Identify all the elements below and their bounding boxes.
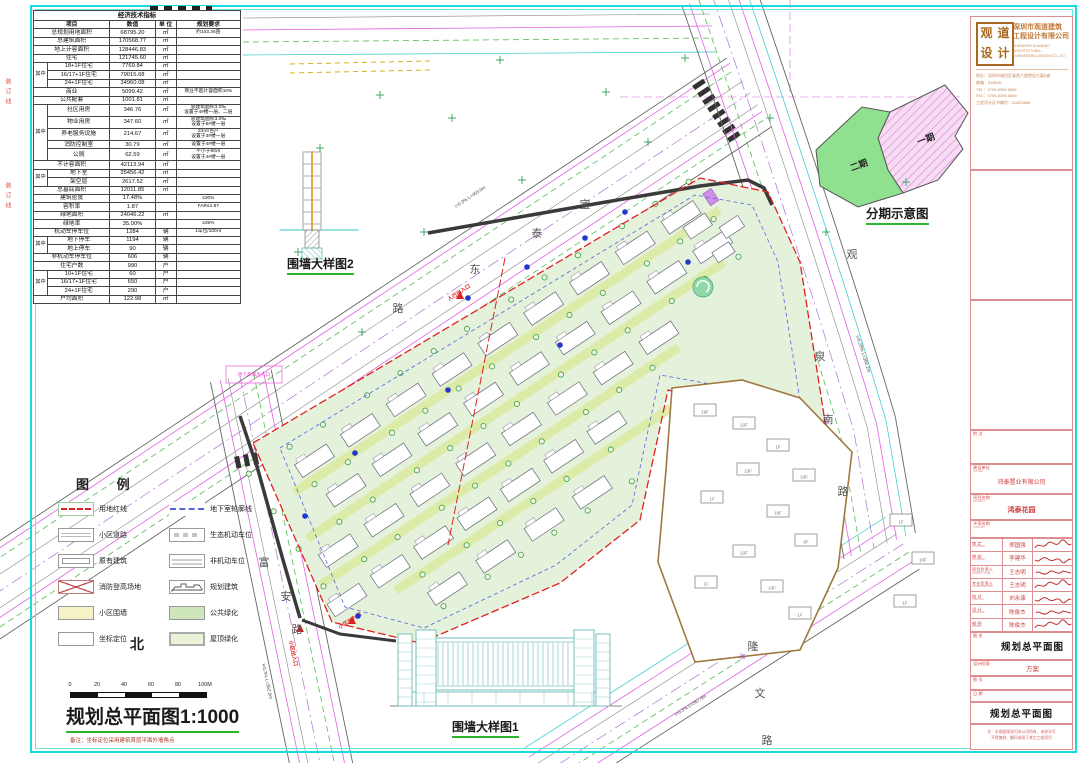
project-name: 鸿泰花园 [971, 505, 1072, 515]
scale-tick: 20 [94, 682, 100, 688]
svg-text:路: 路 [393, 302, 404, 315]
notes-box: 附 注 [970, 430, 1073, 464]
signature-row: 制 图DRAWN陈俊杰 [971, 619, 1072, 631]
legend-label: 规划建筑 [210, 582, 238, 592]
north-label: 北 [130, 634, 144, 654]
drawing-name: 规划总平面图 [995, 633, 1070, 659]
indicator-row: 24+1F住宅290户 [34, 287, 241, 295]
legend-swatch-fire [58, 580, 94, 594]
indicator-row: 其中10+1F住宅60户 [34, 270, 241, 278]
design-firm-box: 观道设计 深圳市观道建筑工程设计有限公司 SHENZHEN GUANDAO AR… [970, 16, 1073, 170]
svg-text:1F: 1F [902, 601, 908, 606]
indicator-row: 建筑密度17.48%≤30% [34, 194, 241, 202]
legend-item: 地下室轮廓线 [169, 502, 270, 516]
svg-text:1F: 1F [703, 582, 709, 587]
drawing-title: 规划总平面图1:1000 [66, 702, 239, 733]
scale-tick: 0 [68, 682, 71, 688]
indicator-row: 总建筑面积170568.77㎡ [34, 37, 241, 45]
legend-title: 图 例 [76, 474, 270, 493]
drawing-sheet: ✳ 19F10F1F10F13F1F10F9F10F1F10F1F1F10F1F… [0, 0, 1080, 763]
drawing-name-box: 图 名 规划总平面图 [970, 632, 1073, 660]
indicator-row: 16/17+1F住宅650户 [34, 278, 241, 286]
svg-text:13F: 13F [744, 469, 752, 474]
svg-text:10F: 10F [919, 558, 927, 563]
signature-table: 审 定APPROVED郑国强审 核REVIEWED李建华项目负责人PROJECT… [970, 538, 1073, 632]
fence-detail-1-title: 围墙大样图1 [452, 718, 519, 738]
indicator-row: 绿地面积24046.22㎡ [34, 211, 241, 219]
company-seal: 观道设计 [976, 22, 1014, 66]
fence-detail-1 [390, 630, 622, 706]
legend-item: 小区围墙 [58, 606, 159, 620]
stage-box: 设计阶段 方案 [970, 660, 1073, 676]
indicator-row: 消防控制室30.79㎡设置于4#楼一层 [34, 141, 241, 149]
company-name: 深圳市观道建筑工程设计有限公司 [1013, 23, 1069, 42]
table-title: 经济技术指标 [34, 11, 241, 21]
legend-swatch-bike [169, 554, 205, 568]
legend-swatch-planned [169, 580, 205, 594]
legend-label: 屋顶绿化 [210, 634, 238, 644]
svg-text:路: 路 [292, 623, 303, 636]
indicator-row: 商业5099.42㎡商业不超计容面积10% [34, 88, 241, 96]
indicator-row: 总规划用地面积68795.20㎡约103.36亩 [34, 29, 241, 37]
indicator-row: 其中18+1F住宅7769.84㎡ [34, 62, 241, 70]
subitem-box: 子项名称SUBITEM [970, 520, 1073, 538]
indicator-row: 架空层2617.52㎡ [34, 178, 241, 186]
indicator-row: 养老服务设施214.67㎡20㎡/百户 设置于3#楼一层 [34, 128, 241, 140]
svg-text:i=0.3% L=362.5m: i=0.3% L=362.5m [261, 663, 273, 699]
legend-label: 地下室轮廓线 [210, 504, 252, 514]
revision-box [970, 170, 1073, 300]
legend-swatch-coord [58, 632, 94, 646]
legend-swatch-existing [58, 554, 94, 568]
legend-item: 小区道路 [58, 528, 159, 542]
legend-swatch-reddash [58, 502, 94, 516]
phasing-diagram-title: 分期示意图 [866, 203, 929, 225]
legend-label: 用地红线 [99, 504, 127, 514]
svg-text:泉: 泉 [815, 349, 826, 363]
legend-label: 消防登高场地 [99, 582, 141, 592]
fence-detail-2 [280, 152, 358, 259]
legend-swatch-road [58, 528, 94, 542]
svg-text:i=0.3% L=453.0m: i=0.3% L=453.0m [454, 185, 487, 209]
indicator-row: 非机动车停车位606辆 [34, 253, 241, 261]
svg-text:1F: 1F [898, 520, 904, 525]
indicator-row: 机动车停车位1284辆1车位/100㎡ [34, 228, 241, 236]
title-block: 观道设计 深圳市观道建筑工程设计有限公司 SHENZHEN GUANDAO AR… [966, 4, 1078, 754]
drawing-no-box: 图 号 [970, 676, 1073, 690]
signature-row: 审 核REVIEWED李建华 [971, 552, 1072, 565]
signature-row: 审 定APPROVED郑国强 [971, 539, 1072, 552]
indicator-row: 24+1F住宅34960.08㎡ [34, 79, 241, 87]
svg-text:1F: 1F [775, 445, 781, 450]
svg-text:10F: 10F [740, 551, 748, 556]
scale-bar: 020406080100M [70, 682, 206, 700]
date-box: 日 期 [970, 690, 1073, 702]
indicator-row: 绿地率35.00%≥35% [34, 220, 241, 228]
svg-text:1F: 1F [709, 497, 715, 502]
svg-text:10F: 10F [800, 475, 808, 480]
scale-tick: 40 [121, 682, 127, 688]
company-name-en: SHENZHEN GUANDAO ARCHITECTURALENGINEERIN… [1013, 44, 1072, 58]
indicator-row: 容积率1.87FAR≤1.87 [34, 203, 241, 211]
scale-tick: 100M [198, 682, 212, 688]
legend-swatch-eco [169, 528, 205, 542]
scale-tick: 80 [175, 682, 181, 688]
binding-mark-text: 装订线 [3, 182, 12, 212]
legend-item: 用地红线 [58, 502, 159, 516]
indicator-row: 公共配套1001.81㎡ [34, 96, 241, 104]
indicator-row: 住宅户数990户 [34, 262, 241, 270]
legend-label: 公共绿化 [210, 608, 238, 618]
svg-text:东: 东 [470, 263, 481, 276]
legend-label: 坐标定位 [99, 634, 127, 644]
svg-text:南: 南 [823, 413, 834, 426]
indicator-row: 其中地下室35456.42㎡ [34, 169, 241, 177]
svg-text:19F: 19F [701, 410, 709, 415]
svg-text:10F: 10F [774, 511, 782, 516]
legend-label: 非机动车位 [210, 556, 245, 566]
svg-text:i=0.25% L=360.2m: i=0.25% L=360.2m [855, 335, 872, 373]
legend-label: 小区围墙 [99, 608, 127, 618]
indicator-row: 总基底面积12011.85㎡ [34, 186, 241, 194]
indicator-row: 其中地下停车1194辆 [34, 236, 241, 244]
legend-swatch-roof [169, 632, 205, 646]
svg-text:10F: 10F [768, 586, 776, 591]
signature-box [970, 300, 1073, 430]
legend-item: 屋顶绿化 [169, 632, 270, 646]
indicator-row: 户均面积122.98㎡ [34, 295, 241, 303]
svg-text:10F: 10F [740, 423, 748, 428]
utility-lines [243, 0, 960, 97]
owner-box: 建设单位OWNER 鸿泰置业有限公司 [970, 464, 1073, 494]
signature-row: 项目负责人PROJECT CHIEF王志明 [971, 566, 1072, 579]
drawing-name-2: 规划总平面图 [973, 703, 1070, 723]
svg-text:安: 安 [281, 589, 292, 603]
stage-value: 方案 [995, 661, 1070, 675]
indicator-row: 其中社区用房346.76㎡总建筑面积3.0‰ 设置于4#楼一层、二层 [34, 104, 241, 116]
svg-text:1F: 1F [797, 613, 803, 618]
indicator-row: 地上计容面积128446.83㎡ [34, 46, 241, 54]
owner-name: 鸿泰置业有限公司 [971, 477, 1072, 486]
project-box: 项目名称PROJECT 鸿泰花园 [970, 494, 1073, 520]
copyright-note-box: 注：本图纸版权归本公司所有，未经许可不得复制、翻印或用于其它工程项目 [970, 724, 1073, 750]
signature-row: 专业负责人DISCIPLINE CHIEF王志明 [971, 579, 1072, 592]
legend-item: 规划建筑 [169, 580, 270, 594]
company-contact: 地址：深圳市福田区泰然六路雪松大厦B座 邮编：518040 TEL：0755-8… [976, 69, 1068, 107]
scale-bar-segments [70, 692, 207, 698]
indicator-row: 住宅121745.60㎡ [34, 54, 241, 62]
signature-row: 校 对CHECKED刘永康 [971, 592, 1072, 605]
indicator-row: 地上停车90辆 [34, 245, 241, 253]
svg-text:i=0.3% L=367.4m: i=0.3% L=367.4m [674, 693, 707, 716]
fence-detail-2-title: 围墙大样图2 [287, 255, 354, 275]
phasing-diagram [816, 85, 968, 207]
drawing-note: 备注：坐标定位采用建筑首层平面外墙角点 [70, 736, 175, 744]
legend-swatch-bluedash [169, 502, 205, 516]
binding-mark-text: 装订线 [3, 78, 12, 108]
legend-item: 原有建筑 [58, 554, 159, 568]
drawing-name-box-2: 规划总平面图 [970, 702, 1073, 724]
legend-item: 非机动车位 [169, 554, 270, 568]
svg-text:地下车库出入口: 地下车库出入口 [238, 371, 271, 378]
svg-text:9F: 9F [803, 540, 809, 545]
svg-text:泰: 泰 [532, 226, 543, 240]
legend-swatch-green [169, 606, 205, 620]
legend: 图 例 用地红线小区道路原有建筑消防登高场地小区围墙坐标定位 地下室轮廓线生态机… [58, 474, 270, 646]
svg-text:路: 路 [838, 485, 849, 498]
legend-item: 消防登高场地 [58, 580, 159, 594]
legend-label: 原有建筑 [99, 556, 127, 566]
svg-text:宝: 宝 [580, 197, 591, 211]
legend-swatch-wall [58, 606, 94, 620]
signature-row: 设 计DESIGNED陈俊杰 [971, 605, 1072, 618]
scale-tick: 60 [148, 682, 154, 688]
legend-item: 生态机动车位 [169, 528, 270, 542]
svg-text:路: 路 [762, 734, 773, 747]
indicator-row: 物业用房347.60㎡总建筑面积3.0‰ 设置于5#楼一层 [34, 116, 241, 128]
indicator-row: 公厕62.59㎡不小于60㎡ 设置于4#楼一层 [34, 149, 241, 161]
svg-text:观: 观 [847, 248, 858, 261]
indicator-row: 16/17+1F住宅79015.68㎡ [34, 71, 241, 79]
legend-item: 公共绿化 [169, 606, 270, 620]
indicator-row: 不计容面积42113.94㎡ [34, 161, 241, 169]
indicators-table: 经济技术指标项目数值单 位规划要求总规划用地面积68795.20㎡约103.36… [33, 10, 241, 304]
svg-text:文: 文 [755, 686, 766, 700]
legend-label: 生态机动车位 [210, 530, 252, 540]
svg-text:✳: ✳ [738, 652, 746, 663]
legend-label: 小区道路 [99, 530, 127, 540]
svg-text:隆: 隆 [748, 639, 759, 653]
svg-text:小区出入口: 小区出入口 [287, 640, 300, 667]
